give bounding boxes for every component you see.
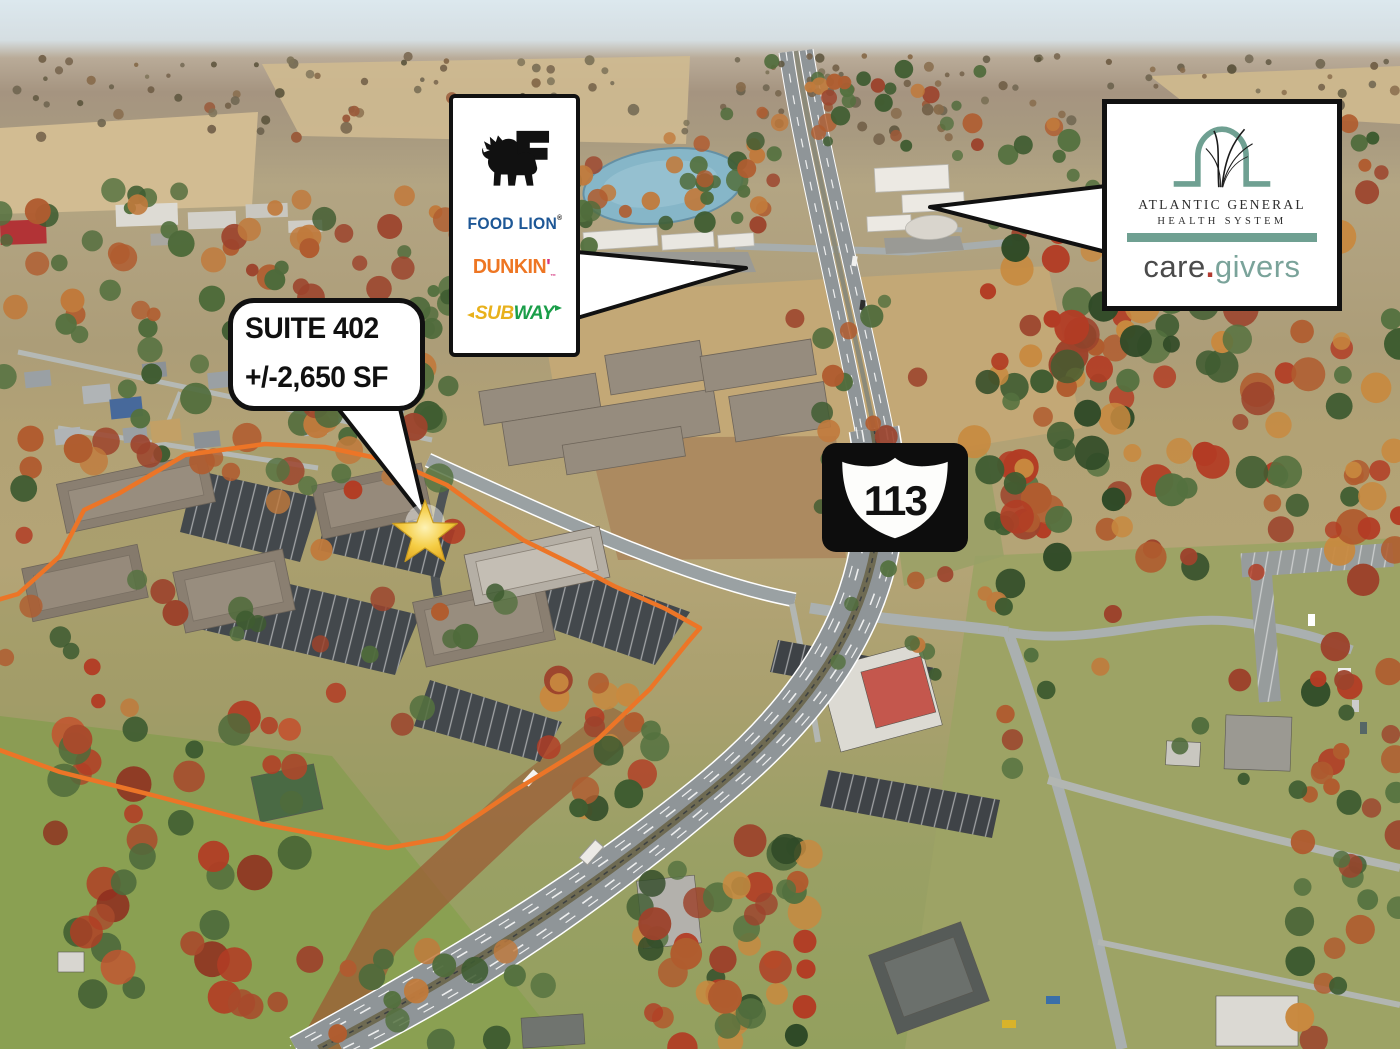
us-route-shield-icon: 113 xyxy=(836,452,954,544)
us-113-route-shield: 113 xyxy=(822,443,968,552)
health-system-callout: ATLANTIC GENERAL HEALTH SYSTEM care.give… xyxy=(1102,99,1342,311)
suite-number-label: SUITE 402 xyxy=(245,312,398,346)
suite-area-label: +/-2,650 SF xyxy=(245,361,398,395)
aerial-photo-scene: FOOD LION® DUNKIN'™ SUBWAY ATLANTIC GENE… xyxy=(0,0,1400,1049)
health-system-tagline: care.givers xyxy=(1143,249,1300,285)
dunkin-label: DUNKIN'™ xyxy=(473,256,556,280)
brands-callout: FOOD LION® DUNKIN'™ SUBWAY xyxy=(449,94,580,357)
subway-label: SUBWAY xyxy=(467,303,562,325)
health-system-arch-icon xyxy=(1162,126,1282,192)
health-system-subname: HEALTH SYSTEM xyxy=(1157,216,1286,227)
route-number: 113 xyxy=(864,476,927,523)
food-lion-label: FOOD LION® xyxy=(467,215,562,234)
teal-divider-bar xyxy=(1127,233,1317,242)
trademark-mark: ™ xyxy=(551,274,556,280)
suite-label-bubble: SUITE 402 +/-2,650 SF xyxy=(228,298,425,411)
registered-mark: ® xyxy=(557,215,562,222)
food-lion-lion-icon xyxy=(478,126,552,192)
health-system-name: ATLANTIC GENERAL xyxy=(1138,197,1306,213)
